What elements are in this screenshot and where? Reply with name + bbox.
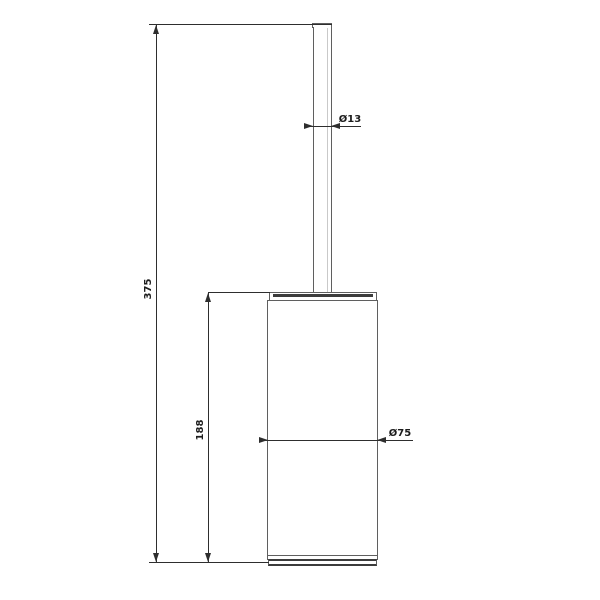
extension-line-bottom [149, 562, 269, 563]
dimension-line-total-height [156, 24, 157, 563]
extension-line-top [149, 24, 332, 25]
label-container-height: 188 [195, 410, 207, 450]
handle-rod [313, 27, 332, 293]
label-total-height: 375 [143, 269, 155, 309]
handle-rod-shading-line [327, 28, 328, 292]
arrow-down-icon [205, 553, 211, 562]
arrow-up-icon [153, 25, 159, 34]
dimension-line-container-diameter [260, 440, 413, 441]
arrow-right-icon [304, 123, 313, 129]
arrow-down-icon [153, 553, 159, 562]
canister-lid-groove [273, 294, 373, 297]
arrow-up-icon [205, 293, 211, 302]
canister-body [267, 300, 378, 556]
extension-line-canister-top [208, 292, 270, 293]
canister-base-band [268, 559, 377, 566]
label-handle-diameter: Ø13 [337, 114, 363, 125]
dimension-line-container-height [208, 292, 209, 563]
arrow-right-icon [259, 437, 268, 443]
label-container-diameter: Ø75 [385, 428, 415, 439]
technical-drawing-canvas: 375 188 Ø13 Ø75 [0, 0, 600, 600]
